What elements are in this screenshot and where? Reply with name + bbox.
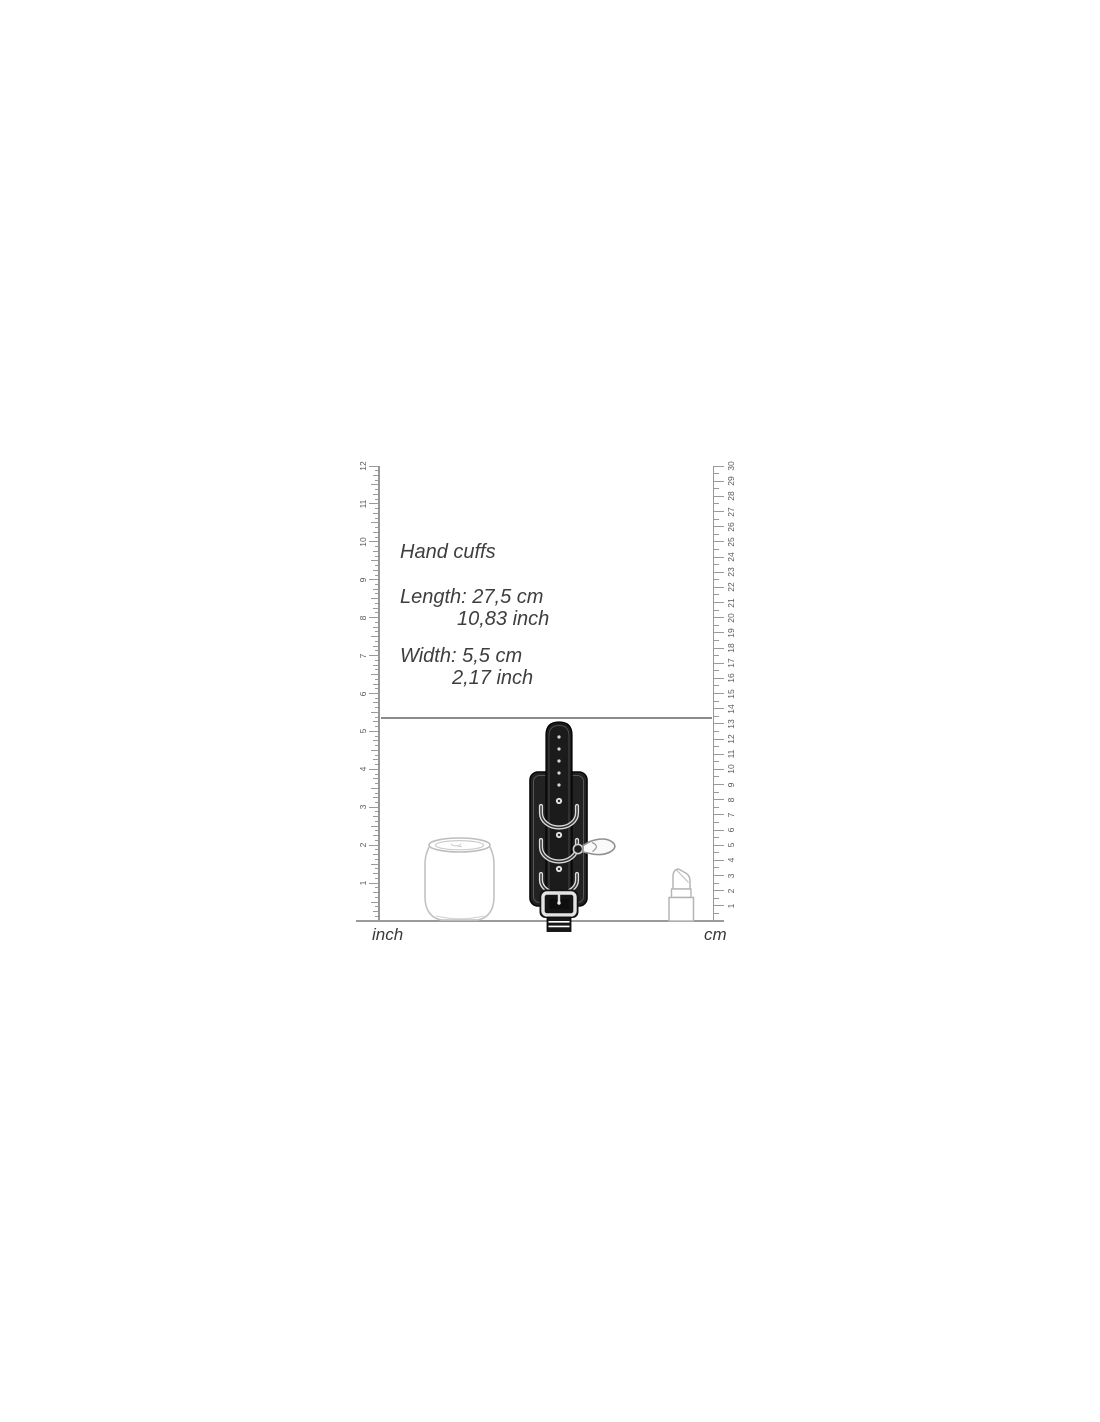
ruler-tick bbox=[375, 612, 379, 613]
ruler-tick bbox=[714, 617, 724, 618]
ruler-number: 5 bbox=[358, 729, 368, 734]
ruler-tick bbox=[714, 693, 724, 694]
ruler-tick bbox=[714, 746, 719, 747]
ruler-tick bbox=[373, 627, 378, 628]
ruler-tick bbox=[714, 534, 719, 535]
ruler-tick bbox=[375, 916, 379, 917]
ruler-tick bbox=[375, 736, 379, 737]
ruler-tick bbox=[375, 537, 379, 538]
ruler-tick bbox=[714, 632, 724, 633]
ruler-tick bbox=[714, 731, 719, 732]
width-value-inch: 2,17 inch bbox=[452, 667, 549, 689]
ruler-number: 3 bbox=[358, 805, 368, 810]
ruler-tick bbox=[375, 802, 379, 803]
ruler-tick bbox=[375, 489, 379, 490]
ruler-number: 25 bbox=[726, 537, 736, 546]
ruler-tick bbox=[714, 541, 724, 542]
ruler-tick bbox=[714, 860, 724, 861]
ruler-tick bbox=[375, 745, 379, 746]
ruler-tick bbox=[373, 494, 378, 495]
ruler-tick bbox=[375, 707, 379, 708]
ruler-number: 29 bbox=[726, 476, 736, 485]
ruler-tick bbox=[375, 849, 379, 850]
ruler-tick bbox=[373, 835, 378, 836]
ruler-tick bbox=[375, 840, 379, 841]
ruler-number: 12 bbox=[726, 734, 736, 743]
ruler-tick bbox=[714, 473, 719, 474]
ruler-number: 2 bbox=[726, 888, 736, 893]
ruler-tick bbox=[369, 655, 379, 656]
ruler-number: 24 bbox=[726, 552, 736, 561]
ruler-tick bbox=[375, 556, 379, 557]
ruler-tick bbox=[714, 503, 719, 504]
ruler-tick bbox=[714, 564, 719, 565]
ruler-tick bbox=[714, 723, 724, 724]
ruler-tick bbox=[373, 665, 378, 666]
ruler-number: 10 bbox=[358, 537, 368, 546]
ruler-number: 11 bbox=[726, 750, 736, 759]
ruler-tick bbox=[714, 716, 719, 717]
inch-ruler-line bbox=[378, 466, 380, 922]
ruler-tick bbox=[714, 830, 724, 831]
ruler-number: 7 bbox=[358, 653, 368, 658]
ruler-tick bbox=[373, 475, 378, 476]
length-label: Length: bbox=[400, 586, 467, 608]
ruler-tick bbox=[714, 792, 719, 793]
ruler-tick bbox=[373, 759, 378, 760]
ruler-number: 5 bbox=[726, 843, 736, 848]
ruler-tick bbox=[373, 702, 378, 703]
ruler-tick bbox=[375, 726, 379, 727]
ruler-tick bbox=[714, 466, 724, 467]
ruler-tick bbox=[373, 570, 378, 571]
ruler-tick bbox=[375, 470, 379, 471]
ruler-tick bbox=[714, 610, 719, 611]
ruler-number: 28 bbox=[726, 492, 736, 501]
strap-tail bbox=[547, 917, 571, 932]
ruler-tick bbox=[373, 740, 378, 741]
ruler-tick bbox=[714, 852, 719, 853]
ruler-number: 7 bbox=[726, 812, 736, 817]
ruler-tick bbox=[714, 587, 724, 588]
soda-can-icon bbox=[418, 830, 502, 925]
ruler-tick bbox=[373, 911, 378, 912]
ruler-tick bbox=[714, 572, 724, 573]
ruler-tick bbox=[375, 868, 379, 869]
ruler-tick bbox=[714, 708, 724, 709]
ruler-tick bbox=[369, 466, 379, 467]
hand-cuffs-product bbox=[515, 712, 635, 940]
ruler-tick bbox=[373, 892, 378, 893]
ruler-tick bbox=[375, 660, 379, 661]
ruler-tick bbox=[714, 905, 724, 906]
ruler-tick bbox=[375, 508, 379, 509]
ruler-tick bbox=[375, 755, 379, 756]
ruler-tick bbox=[375, 527, 379, 528]
ruler-number: 1 bbox=[358, 881, 368, 886]
ruler-number: 8 bbox=[726, 797, 736, 802]
ruler-tick bbox=[375, 774, 379, 775]
ruler-tick bbox=[371, 826, 378, 827]
ruler-tick bbox=[369, 617, 379, 618]
ruler-tick bbox=[371, 902, 378, 903]
ruler-tick bbox=[373, 589, 378, 590]
ruler-tick bbox=[371, 788, 378, 789]
ruler-tick bbox=[375, 698, 379, 699]
ruler-tick bbox=[714, 685, 719, 686]
cm-unit-label: cm bbox=[704, 925, 727, 945]
ruler-tick bbox=[373, 513, 378, 514]
ruler-tick bbox=[375, 821, 379, 822]
ruler-tick bbox=[714, 883, 719, 884]
ruler-number: 30 bbox=[726, 461, 736, 470]
ruler-tick bbox=[714, 640, 719, 641]
ruler-tick bbox=[369, 731, 379, 732]
ruler-number: 3 bbox=[726, 873, 736, 878]
ruler-tick bbox=[369, 579, 379, 580]
ruler-tick bbox=[375, 830, 379, 831]
ruler-tick bbox=[375, 480, 379, 481]
ruler-tick bbox=[714, 655, 719, 656]
length-line-cm: Length: 27,5 cm bbox=[400, 586, 549, 608]
ruler-tick bbox=[714, 625, 719, 626]
inch-unit-label: inch bbox=[372, 925, 403, 945]
ruler-tick bbox=[373, 854, 378, 855]
ruler-tick bbox=[714, 602, 724, 603]
ruler-tick bbox=[369, 503, 379, 504]
ruler-number: 9 bbox=[358, 577, 368, 582]
ruler-number: 20 bbox=[726, 613, 736, 622]
ruler-tick bbox=[714, 549, 719, 550]
ruler-tick bbox=[714, 913, 719, 914]
ruler-tick bbox=[373, 684, 378, 685]
ruler-tick bbox=[714, 488, 719, 489]
ruler-number: 15 bbox=[726, 689, 736, 698]
product-title: Hand cuffs bbox=[400, 541, 549, 563]
buckle-icon bbox=[540, 890, 579, 919]
ruler-tick bbox=[714, 739, 724, 740]
ruler-tick bbox=[371, 522, 378, 523]
ruler-tick bbox=[369, 845, 379, 846]
ruler-number: 12 bbox=[358, 461, 368, 470]
ruler-tick bbox=[714, 701, 719, 702]
ruler-tick bbox=[373, 721, 378, 722]
ruler-tick bbox=[714, 511, 724, 512]
ruler-tick bbox=[375, 603, 379, 604]
ruler-tick bbox=[373, 797, 378, 798]
ruler-tick bbox=[375, 622, 379, 623]
ruler-tick bbox=[714, 594, 719, 595]
ruler-tick bbox=[371, 864, 378, 865]
ruler-tick bbox=[375, 793, 379, 794]
ruler-number: 10 bbox=[726, 765, 736, 774]
ruler-tick bbox=[375, 650, 379, 651]
ruler-tick bbox=[714, 496, 724, 497]
ruler-number: 26 bbox=[726, 522, 736, 531]
width-line-cm: Width: 5,5 cm bbox=[400, 645, 549, 667]
product-info: Hand cuffs Length: 27,5 cm 10,83 inch Wi… bbox=[400, 541, 549, 689]
ruler-tick bbox=[375, 897, 379, 898]
ruler-tick bbox=[375, 717, 379, 718]
ruler-tick bbox=[714, 579, 719, 580]
ruler-tick bbox=[714, 814, 724, 815]
ruler-number: 13 bbox=[726, 719, 736, 728]
ruler-number: 4 bbox=[726, 858, 736, 863]
ruler-tick bbox=[375, 688, 379, 689]
ruler-tick bbox=[371, 674, 378, 675]
ruler-tick bbox=[371, 560, 378, 561]
ruler-tick bbox=[375, 631, 379, 632]
width-label: Width: bbox=[400, 645, 457, 667]
ruler-tick bbox=[714, 784, 724, 785]
ruler-tick bbox=[714, 754, 724, 755]
ruler-tick bbox=[714, 867, 719, 868]
ruler-number: 22 bbox=[726, 583, 736, 592]
product-dimension-diagram: Hand cuffs Length: 27,5 cm 10,83 inch Wi… bbox=[0, 0, 1100, 1422]
ruler-number: 2 bbox=[358, 843, 368, 848]
ruler-tick bbox=[375, 593, 379, 594]
ruler-tick bbox=[714, 481, 724, 482]
ruler-tick bbox=[714, 837, 719, 838]
ruler-tick bbox=[714, 898, 719, 899]
ruler-number: 19 bbox=[726, 628, 736, 637]
ruler-number: 6 bbox=[726, 828, 736, 833]
ruler-tick bbox=[369, 769, 379, 770]
ruler-tick bbox=[371, 712, 378, 713]
ruler-tick bbox=[369, 541, 379, 542]
ruler-tick bbox=[369, 807, 379, 808]
ruler-tick bbox=[373, 816, 378, 817]
ruler-tick bbox=[714, 807, 719, 808]
ruler-tick bbox=[714, 648, 724, 649]
ruler-tick bbox=[371, 636, 378, 637]
ruler-tick bbox=[373, 646, 378, 647]
ruler-tick bbox=[375, 584, 379, 585]
ruler-tick bbox=[375, 679, 379, 680]
ruler-tick bbox=[375, 887, 379, 888]
ruler-tick bbox=[375, 575, 379, 576]
ruler-tick bbox=[375, 669, 379, 670]
length-value-cm: 27,5 cm bbox=[472, 586, 543, 608]
ruler-tick bbox=[714, 875, 724, 876]
ruler-tick bbox=[373, 873, 378, 874]
ruler-tick bbox=[375, 565, 379, 566]
ruler-tick bbox=[375, 518, 379, 519]
ruler-tick bbox=[375, 811, 379, 812]
ruler-tick bbox=[371, 484, 378, 485]
ruler-tick bbox=[714, 519, 719, 520]
ruler-number: 14 bbox=[726, 704, 736, 713]
ruler-tick bbox=[714, 776, 719, 777]
ruler-number: 4 bbox=[358, 767, 368, 772]
ruler-number: 11 bbox=[358, 499, 368, 508]
ruler-number: 18 bbox=[726, 643, 736, 652]
ruler-tick bbox=[714, 526, 724, 527]
ruler-number: 1 bbox=[726, 903, 736, 908]
ruler-tick bbox=[375, 641, 379, 642]
ruler-tick bbox=[375, 906, 379, 907]
ruler-number: 23 bbox=[726, 567, 736, 576]
ruler-tick bbox=[373, 532, 378, 533]
ruler-number: 27 bbox=[726, 507, 736, 516]
ruler-tick bbox=[714, 678, 724, 679]
ruler-number: 16 bbox=[726, 674, 736, 683]
ruler-tick bbox=[714, 761, 719, 762]
ruler-tick bbox=[714, 670, 719, 671]
length-value-inch: 10,83 inch bbox=[457, 608, 549, 630]
ruler-number: 17 bbox=[726, 658, 736, 667]
ruler-tick bbox=[369, 883, 379, 884]
width-value-cm: 5,5 cm bbox=[462, 645, 522, 667]
ruler-tick bbox=[714, 769, 724, 770]
ruler-tick bbox=[714, 557, 724, 558]
ruler-tick bbox=[371, 598, 378, 599]
ruler-tick bbox=[375, 764, 379, 765]
ruler-tick bbox=[375, 499, 379, 500]
ruler-tick bbox=[375, 878, 379, 879]
ruler-tick bbox=[375, 783, 379, 784]
ruler-tick bbox=[375, 859, 379, 860]
ruler-number: 6 bbox=[358, 691, 368, 696]
ruler-tick bbox=[373, 608, 378, 609]
ruler-tick bbox=[714, 799, 724, 800]
ruler-number: 8 bbox=[358, 615, 368, 620]
ruler-tick bbox=[714, 663, 724, 664]
ruler-tick bbox=[714, 845, 724, 846]
ruler-tick bbox=[369, 693, 379, 694]
ruler-number: 9 bbox=[726, 782, 736, 787]
ruler-number: 21 bbox=[726, 598, 736, 607]
ruler-tick bbox=[714, 890, 724, 891]
ruler-tick bbox=[373, 551, 378, 552]
ruler-tick bbox=[375, 546, 379, 547]
ruler-tick bbox=[373, 778, 378, 779]
lipstick-icon bbox=[660, 860, 704, 925]
ruler-tick bbox=[714, 822, 719, 823]
ruler-tick bbox=[371, 750, 378, 751]
